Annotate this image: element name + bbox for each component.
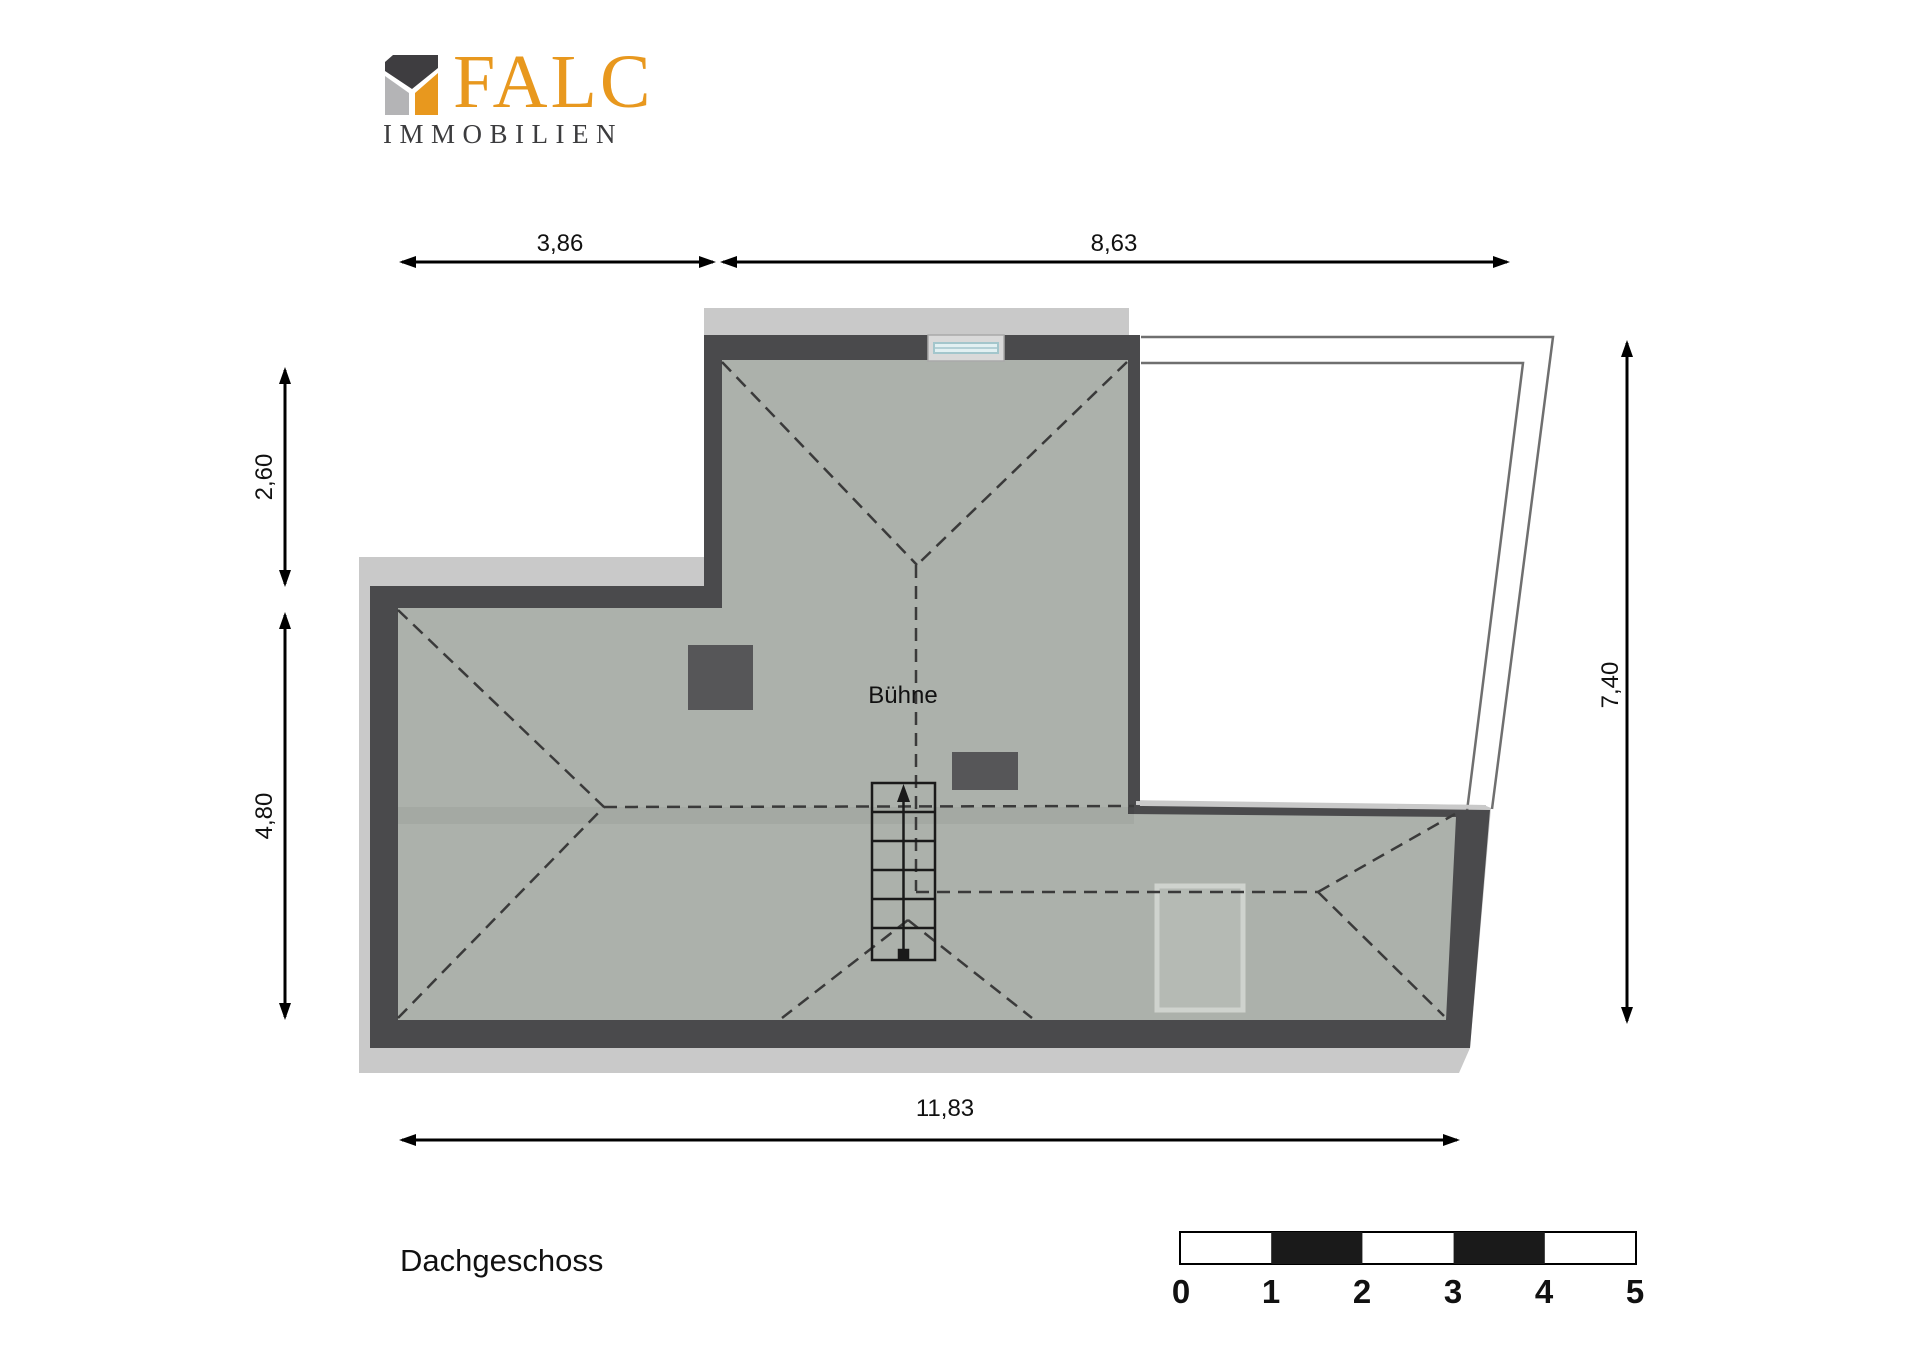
chimney-small bbox=[952, 752, 1018, 790]
open-roof-area bbox=[1140, 331, 1558, 804]
room-label-buehne: Bühne bbox=[868, 682, 937, 709]
dim-top-left: 3,86 bbox=[537, 230, 584, 257]
roof-window bbox=[1157, 886, 1243, 1010]
scale-label-4: 4 bbox=[1535, 1273, 1554, 1310]
dim-left-lower: 4,80 bbox=[251, 793, 278, 840]
scale-label-5: 5 bbox=[1626, 1273, 1644, 1310]
ridge-shade-strip bbox=[398, 807, 1134, 824]
scale-label-3: 3 bbox=[1444, 1273, 1462, 1310]
dormer-window bbox=[928, 335, 1004, 361]
floor-label: Dachgeschoss bbox=[400, 1243, 603, 1278]
scale-bar-frame bbox=[1180, 1232, 1636, 1264]
scale-label-0: 0 bbox=[1172, 1273, 1190, 1310]
floorplan-drawing: 3,86 8,63 2,60 4,80 7,40 11,83 Bühne Dac… bbox=[0, 0, 1920, 1357]
scale-bar-segment bbox=[1454, 1232, 1545, 1264]
stair-walkline-start bbox=[899, 950, 908, 959]
scale-label-2: 2 bbox=[1353, 1273, 1371, 1310]
dim-top-right: 8,63 bbox=[1091, 230, 1138, 257]
floorplan-page: FALC IMMOBILIEN bbox=[0, 0, 1920, 1357]
dim-left-upper: 2,60 bbox=[251, 454, 278, 501]
scale-bar-segment bbox=[1271, 1232, 1362, 1264]
dim-right: 7,40 bbox=[1597, 662, 1624, 709]
scale-bar: 0 1 2 3 4 5 bbox=[1172, 1232, 1644, 1310]
dim-bottom: 11,83 bbox=[916, 1095, 974, 1122]
scale-label-1: 1 bbox=[1262, 1273, 1280, 1310]
chimney-large bbox=[688, 645, 753, 710]
